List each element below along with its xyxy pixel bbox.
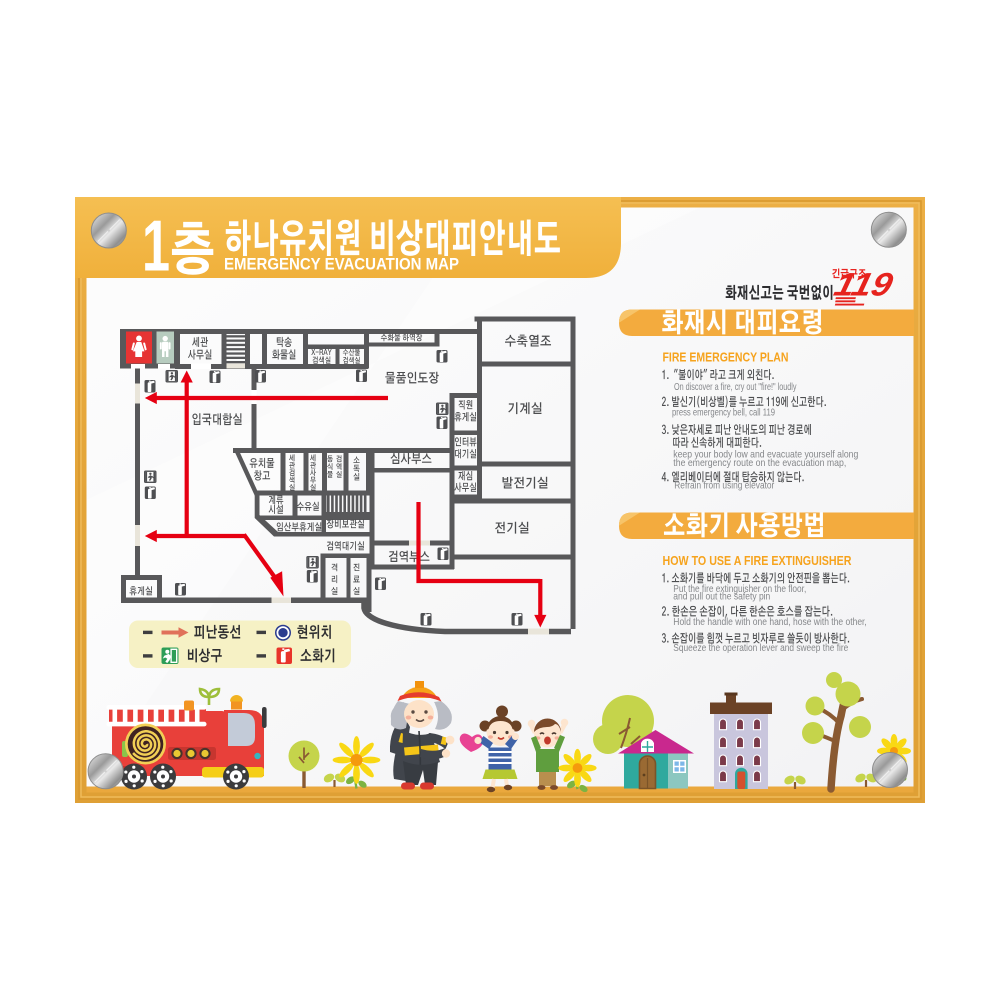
svg-text:EMERGENCY EVACUATION MAP: EMERGENCY EVACUATION MAP xyxy=(224,256,459,274)
svg-text:press emergency bell, call 119: press emergency bell, call 119 xyxy=(672,408,775,419)
svg-text:On discover a fire, cry out "f: On discover a fire, cry out "fire!" loud… xyxy=(674,382,797,393)
svg-text:Hold the handle with one hand,: Hold the handle with one hand, hose with… xyxy=(673,617,867,628)
svg-text:HOW TO USE A FIRE EXTINGUISHER: HOW TO USE A FIRE EXTINGUISHER xyxy=(663,553,852,568)
svg-text:the emergency route on the eva: the emergency route on the evacuation ma… xyxy=(673,458,846,469)
svg-text:and pull out the safety pin: and pull out the safety pin xyxy=(673,591,770,602)
svg-text:FIRE EMERGENCY PLAN: FIRE EMERGENCY PLAN xyxy=(663,350,789,365)
svg-text:Squeeze the operation lever an: Squeeze the operation lever and sweep th… xyxy=(673,643,848,654)
svg-text:1: 1 xyxy=(142,207,170,287)
svg-text:Refrain from using elevator: Refrain from using elevator xyxy=(674,481,774,492)
svg-text:119: 119 xyxy=(831,266,898,302)
